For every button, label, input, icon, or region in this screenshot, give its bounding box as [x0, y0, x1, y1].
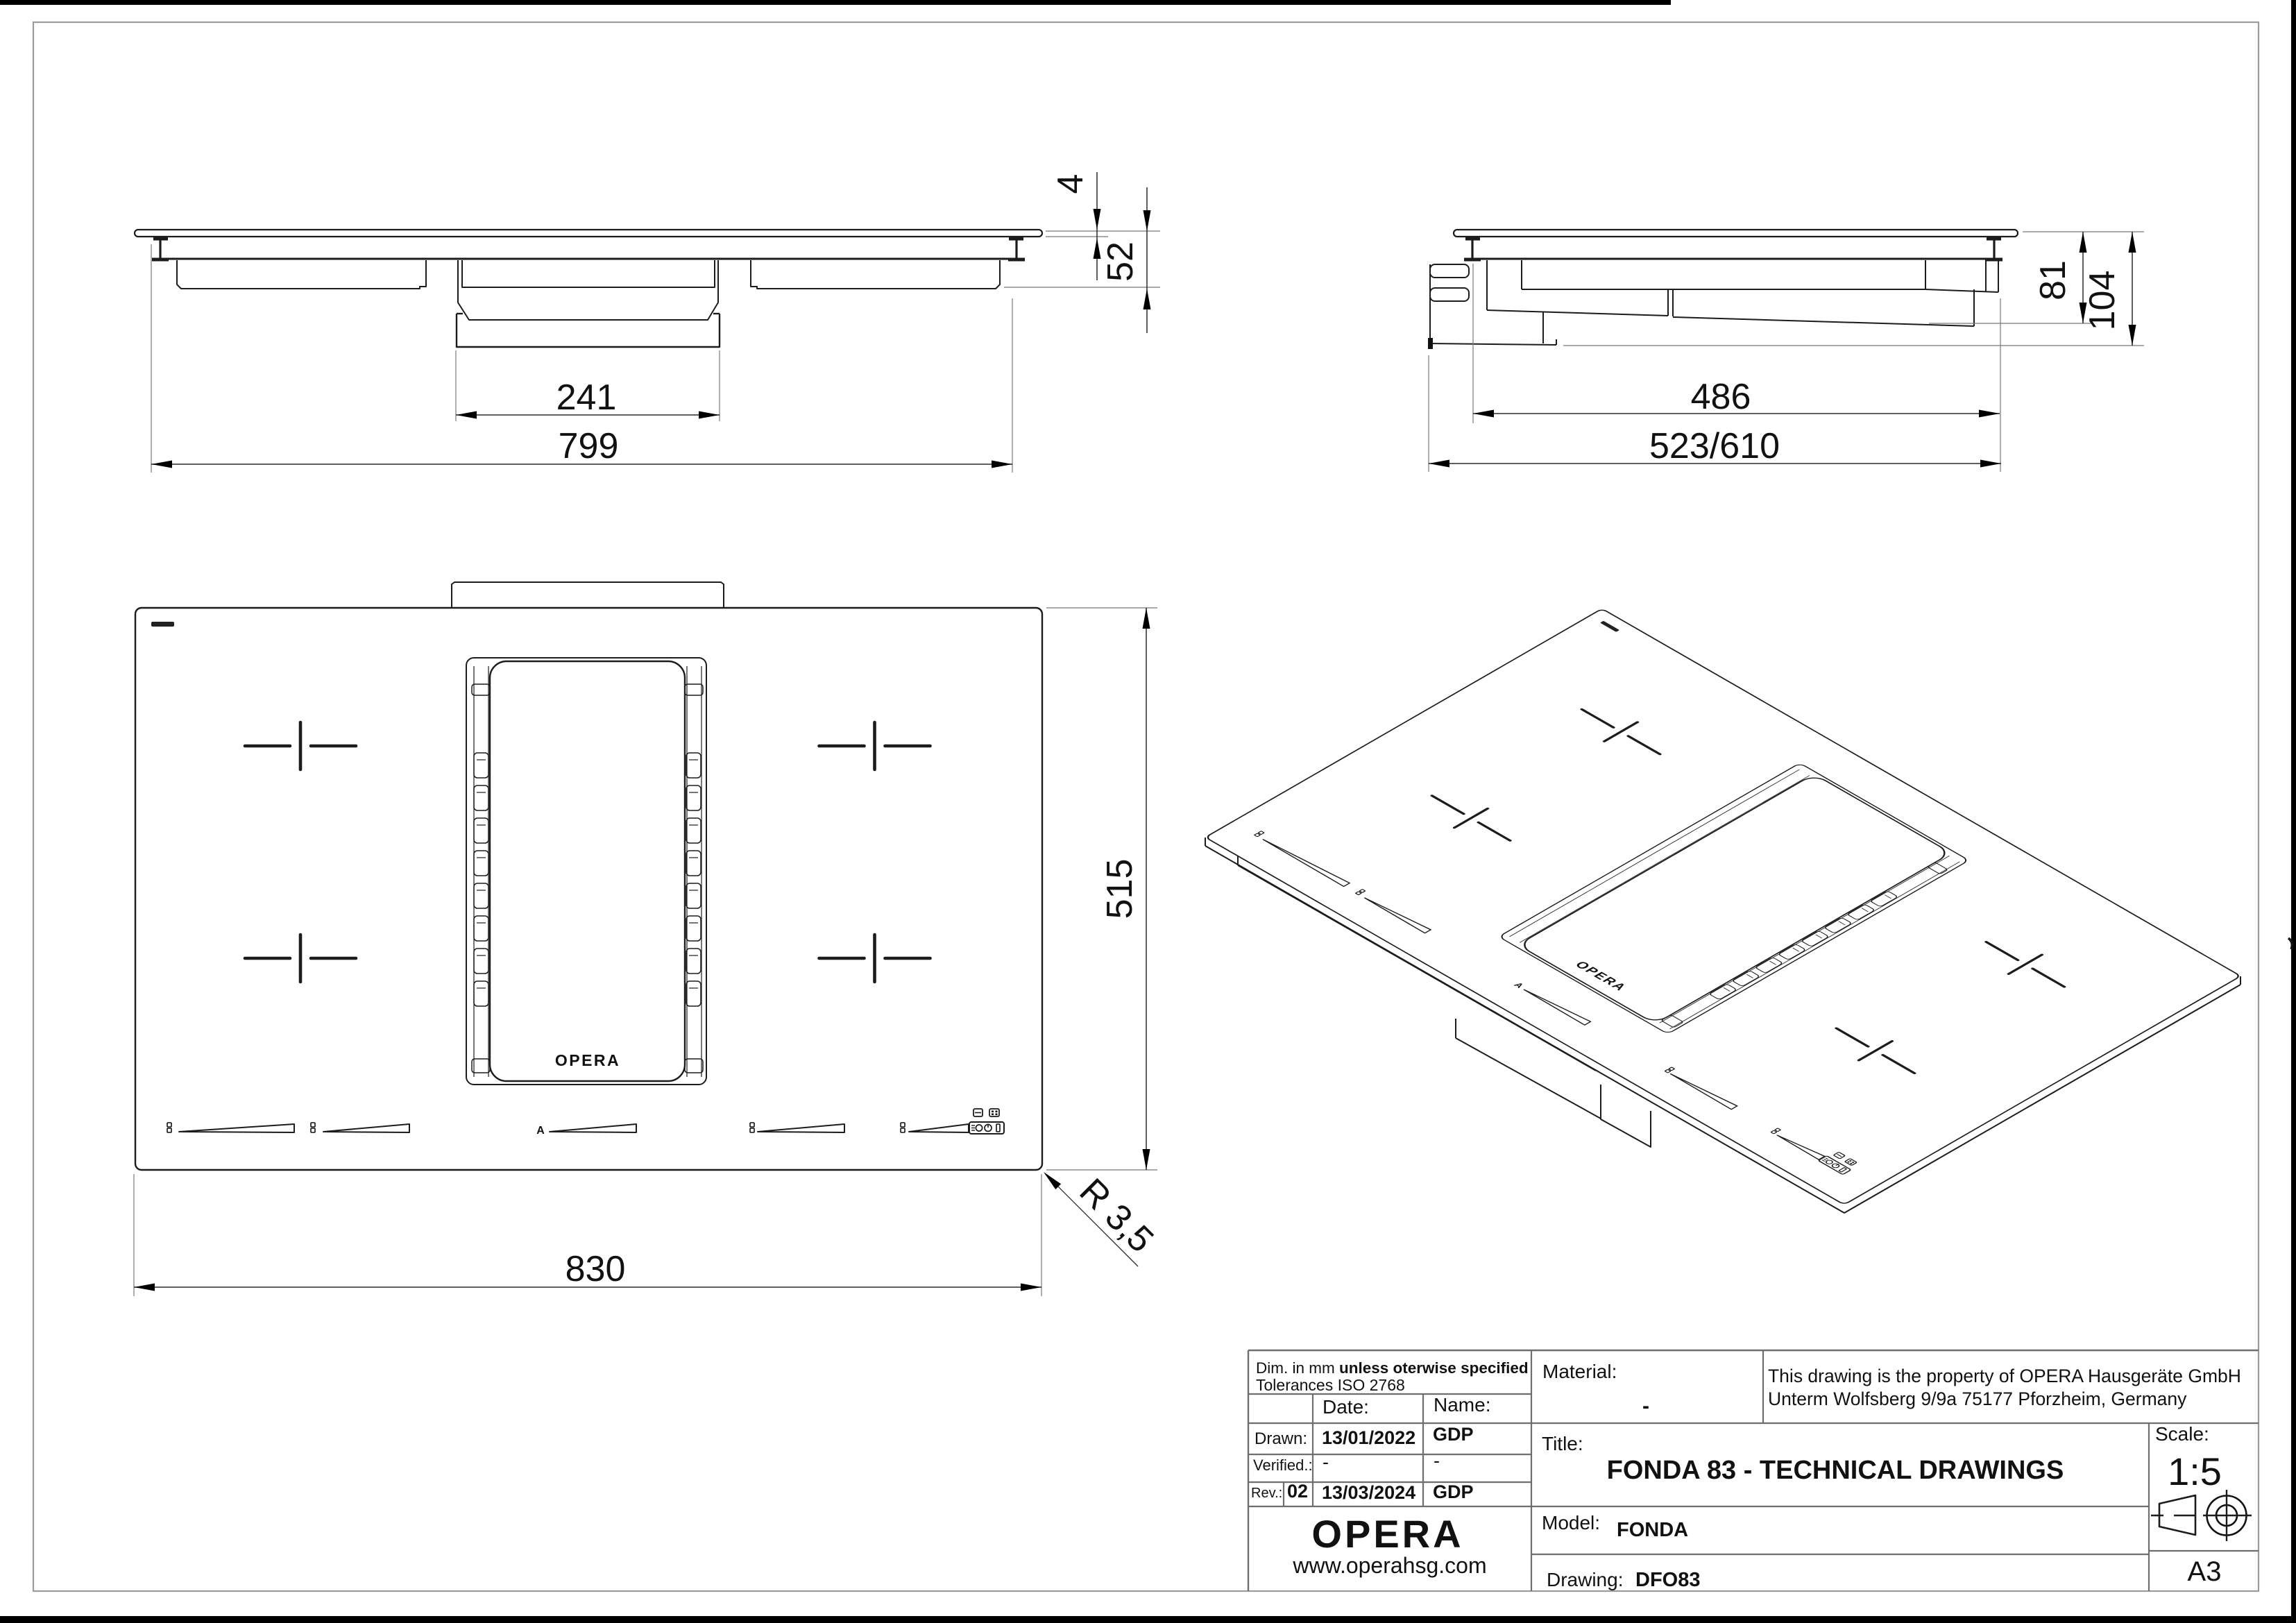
svg-text:Name:: Name: [1434, 1394, 1490, 1416]
svg-text:Drawing:: Drawing: [1547, 1569, 1623, 1590]
svg-text:52: 52 [1100, 241, 1141, 282]
svg-text:A3: A3 [2188, 1556, 2222, 1587]
svg-text:FONDA 83 - TECHNICAL DRAWINGS: FONDA 83 - TECHNICAL DRAWINGS [1607, 1456, 2064, 1485]
svg-text:523/610: 523/610 [1649, 426, 1780, 466]
svg-text:OPERA: OPERA [1311, 1512, 1463, 1556]
svg-text:Rev.:: Rev.: [1251, 1486, 1282, 1501]
svg-text:799: 799 [559, 426, 619, 466]
svg-text:4: 4 [1051, 174, 1091, 194]
svg-text:Dim. in mm unless oterwise spe: Dim. in mm unless oterwise specified [1256, 1359, 1529, 1377]
svg-text:Verified.:: Verified.: [1253, 1456, 1313, 1474]
svg-text:13/01/2022: 13/01/2022 [1322, 1427, 1415, 1448]
svg-text:1:5: 1:5 [2168, 1450, 2222, 1493]
svg-text:-: - [1642, 1395, 1649, 1418]
svg-text:Model:: Model: [1542, 1512, 1600, 1533]
svg-text:Date:: Date: [1323, 1396, 1369, 1418]
svg-text:GDP: GDP [1433, 1424, 1474, 1445]
svg-text:Drawn:: Drawn: [1255, 1429, 1307, 1448]
svg-text:OPERA: OPERA [555, 1051, 620, 1069]
svg-text:486: 486 [1691, 377, 1751, 417]
svg-text:Material:: Material: [1542, 1361, 1617, 1382]
svg-text:Scale:: Scale: [2155, 1423, 2209, 1445]
svg-text:-: - [1434, 1450, 1440, 1471]
svg-text:830: 830 [566, 1249, 626, 1289]
svg-text:-: - [1323, 1452, 1329, 1472]
svg-text:81: 81 [2033, 260, 2073, 300]
svg-text:Unterm Wolfsberg 9/9a 75177 Pf: Unterm Wolfsberg 9/9a 75177 Pforzheim, G… [1768, 1388, 2187, 1409]
svg-text:104: 104 [2082, 271, 2123, 331]
svg-text:www.operahsg.com: www.operahsg.com [1292, 1553, 1486, 1578]
svg-text:DFO83: DFO83 [1635, 1569, 1700, 1591]
svg-text:A: A [536, 1125, 545, 1137]
svg-text:241: 241 [556, 377, 617, 418]
svg-text:Title:: Title: [1542, 1433, 1583, 1454]
svg-text:GDP: GDP [1433, 1481, 1474, 1502]
svg-text:This drawing is the property o: This drawing is the property of OPERA Ha… [1768, 1366, 2241, 1386]
svg-text:515: 515 [1100, 859, 1140, 919]
svg-text:13/03/2024: 13/03/2024 [1322, 1482, 1415, 1503]
svg-text:FONDA: FONDA [1617, 1519, 1688, 1541]
svg-text:02: 02 [1287, 1481, 1308, 1502]
svg-text:Tolerances ISO 2768: Tolerances ISO 2768 [1256, 1376, 1405, 1394]
